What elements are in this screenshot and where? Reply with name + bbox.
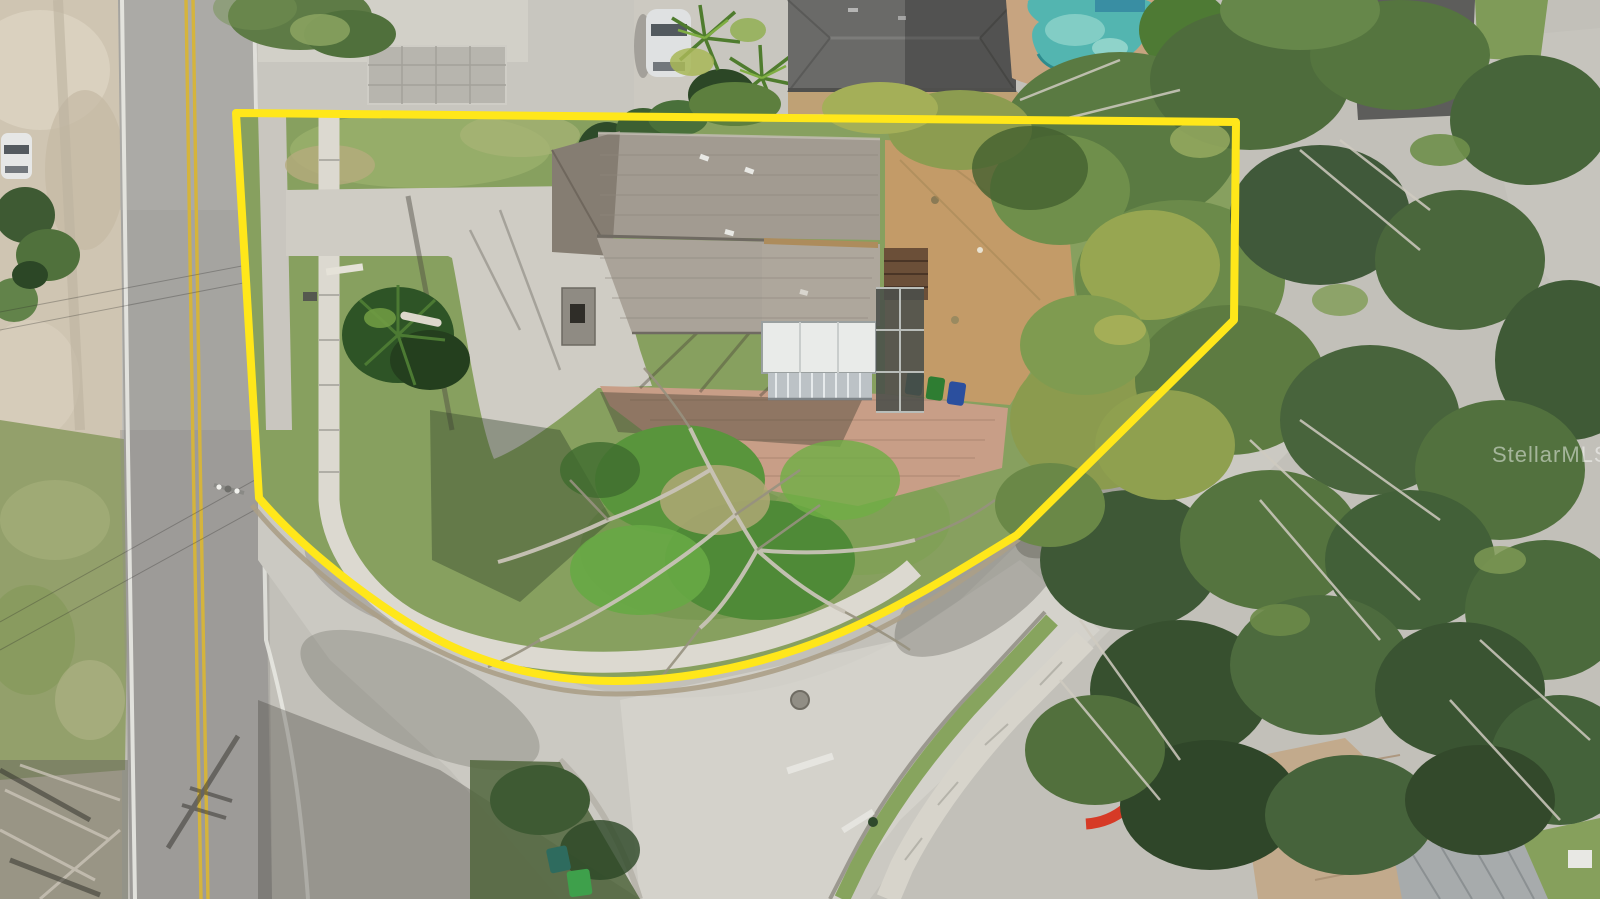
aerial-photo: StellarMLS [0,0,1600,899]
screen-enclosure [876,288,924,412]
chimney [562,288,595,345]
manhole-cover [791,691,809,709]
metal-awning [768,373,872,399]
roof-right-wing [762,244,880,326]
utility-box-lawn [303,292,317,301]
utility-box [868,817,878,827]
porch-roof [762,322,876,399]
roof-upper-plane [597,133,880,240]
aerial-photo-svg: StellarMLS [0,0,1600,899]
watermark-text: StellarMLS [1492,442,1600,467]
parked-car-left [1,133,32,179]
paver-pad [368,46,506,104]
left-dirt-shoulder [0,0,130,899]
small-white-structure [1568,850,1592,868]
